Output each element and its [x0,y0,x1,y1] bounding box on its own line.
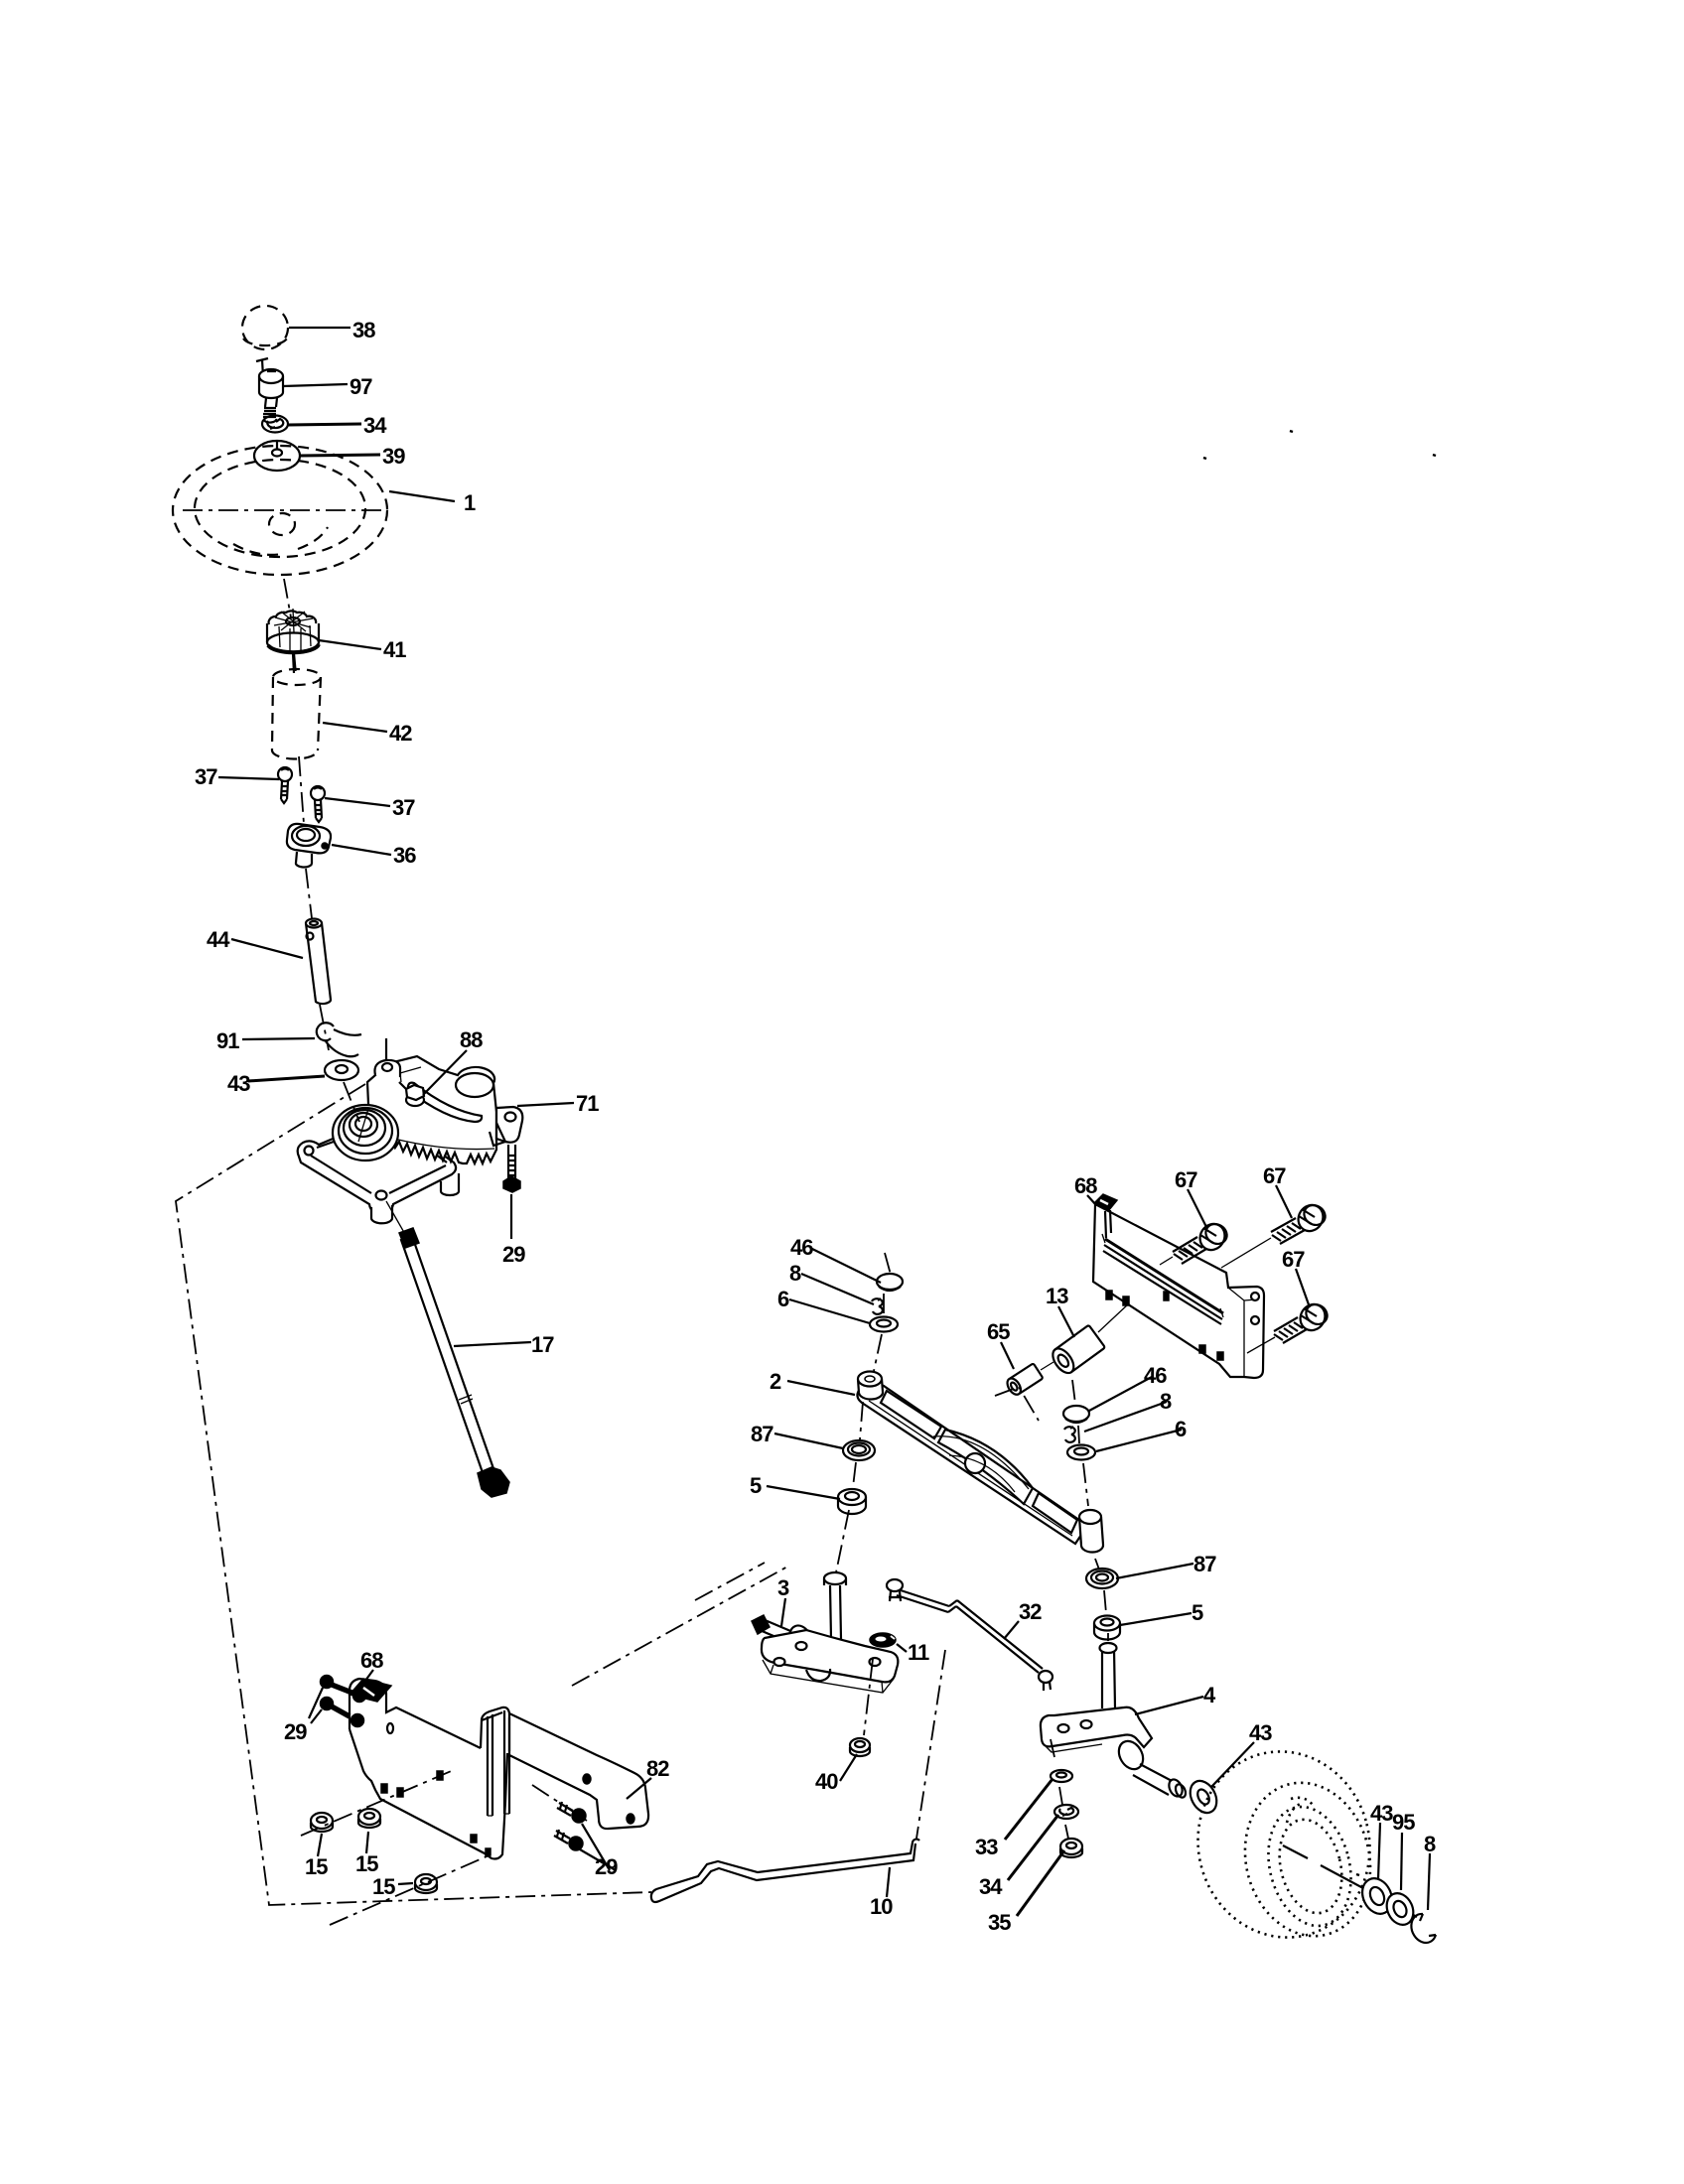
svg-text:42: 42 [389,721,412,746]
svg-text:87: 87 [751,1422,773,1446]
svg-text:97: 97 [350,374,372,399]
svg-text:46: 46 [1144,1363,1167,1388]
svg-text:33: 33 [975,1835,998,1859]
svg-text:71: 71 [576,1091,599,1116]
svg-text:67: 67 [1175,1167,1197,1192]
svg-text:67: 67 [1282,1247,1305,1272]
svg-text:88: 88 [460,1027,483,1052]
svg-text:11: 11 [908,1640,929,1665]
svg-text:17: 17 [531,1332,554,1357]
svg-text:8: 8 [1424,1832,1436,1856]
svg-text:32: 32 [1019,1599,1042,1624]
svg-text:13: 13 [1046,1284,1068,1308]
svg-text:29: 29 [595,1854,618,1879]
svg-text:35: 35 [988,1910,1011,1935]
svg-text:38: 38 [352,318,375,342]
svg-text:43: 43 [227,1071,250,1096]
svg-text:95: 95 [1392,1810,1415,1835]
svg-text:5: 5 [750,1473,762,1498]
svg-text:82: 82 [646,1756,669,1781]
svg-text:91: 91 [216,1028,239,1053]
svg-text:15: 15 [355,1851,378,1876]
svg-text:36: 36 [393,843,416,868]
svg-text:87: 87 [1193,1552,1216,1576]
svg-text:15: 15 [305,1854,328,1879]
svg-text:67: 67 [1263,1163,1286,1188]
svg-text:68: 68 [1074,1173,1097,1198]
svg-text:44: 44 [207,927,230,952]
svg-text:2: 2 [770,1369,781,1394]
svg-text:65: 65 [987,1319,1010,1344]
svg-text:8: 8 [789,1261,801,1286]
svg-text:5: 5 [1192,1600,1203,1625]
svg-text:10: 10 [870,1894,893,1919]
svg-text:34: 34 [363,413,387,438]
svg-text:3: 3 [777,1575,789,1600]
svg-text:4: 4 [1203,1683,1216,1707]
svg-text:41: 41 [383,637,406,662]
svg-text:43: 43 [1370,1801,1393,1826]
svg-text:68: 68 [360,1648,383,1673]
svg-text:37: 37 [392,795,415,820]
svg-text:40: 40 [815,1769,838,1794]
svg-text:6: 6 [777,1287,789,1311]
svg-text:15: 15 [372,1874,395,1899]
svg-text:37: 37 [195,764,217,789]
svg-text:46: 46 [790,1235,813,1260]
svg-text:29: 29 [502,1242,525,1267]
svg-text:39: 39 [382,444,405,469]
svg-text:34: 34 [979,1874,1003,1899]
svg-text:29: 29 [284,1719,307,1744]
svg-text:43: 43 [1249,1720,1272,1745]
svg-text:1: 1 [464,490,476,515]
